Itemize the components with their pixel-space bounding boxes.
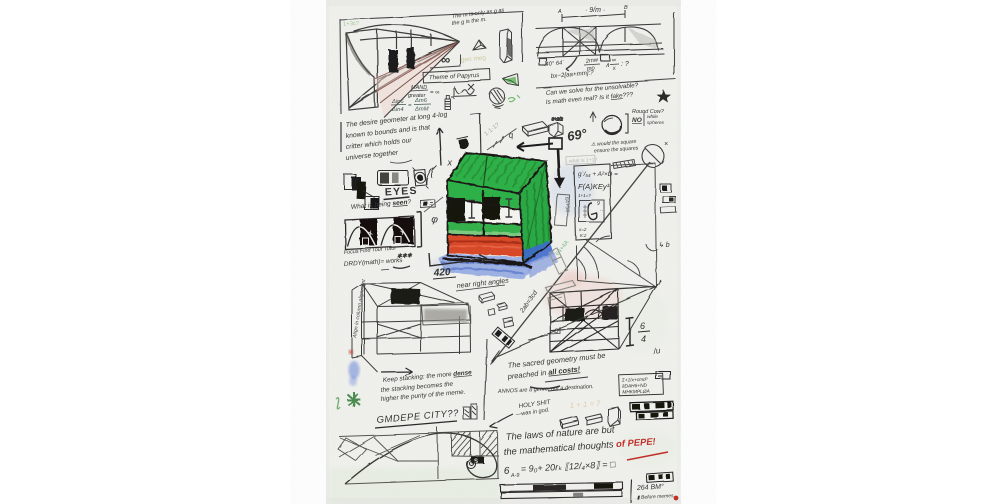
svg-text:6: 6: [504, 466, 511, 477]
svg-text:K:2: K:2: [580, 233, 587, 238]
svg-text:↳ b: ↳ b: [658, 241, 670, 249]
svg-text:ΔmM: ΔmM: [414, 107, 429, 113]
svg-text:Δin6: Δin6: [391, 99, 404, 105]
svg-text:B: B: [624, 5, 628, 11]
svg-text:9: 9: [597, 201, 600, 207]
svg-text:··: ··: [600, 208, 604, 214]
svg-text:Δm6: Δm6: [414, 98, 428, 104]
svg-text:×: ×: [664, 141, 668, 148]
svg-text:∧: ∧: [605, 62, 610, 69]
svg-text:· 9/m ·: · 9/m ·: [585, 7, 605, 14]
svg-text:A: A: [557, 9, 562, 15]
svg-text:Δin4: Δin4: [391, 107, 404, 113]
svg-text:264 BM°: 264 BM°: [636, 483, 665, 492]
svg-text:✱✱✱: ✱✱✱: [397, 252, 413, 260]
svg-text:6: 6: [640, 321, 645, 331]
svg-text:∂DAH6+ND: ∂DAH6+ND: [622, 383, 648, 390]
svg-text:while: while: [647, 114, 658, 120]
svg-text:NO: NO: [632, 117, 642, 124]
svg-text:gʿ/₅₄ + A²×D =: gʿ/₅₄ + A²×D =: [578, 170, 618, 178]
svg-text:64+50: 64+50: [563, 197, 570, 213]
svg-text:=: =: [408, 103, 412, 109]
svg-text:x: x: [447, 158, 453, 168]
svg-text:F(A)KEy¹: F(A)KEy¹: [578, 182, 610, 191]
svg-text:: ?: : ?: [621, 61, 629, 68]
svg-text:4: 4: [641, 334, 646, 344]
svg-text:= ∞: = ∞: [430, 90, 439, 96]
svg-text:∞: ∞: [658, 374, 662, 380]
svg-text:A-9: A-9: [510, 473, 520, 479]
svg-text:spheres: spheres: [647, 120, 665, 126]
svg-text:1+1=?: 1+1=?: [578, 193, 591, 198]
svg-text:MHKMPLØA: MHKMPLØA: [622, 389, 650, 396]
svg-text:Σ+1/x+cmd³: Σ+1/x+cmd³: [621, 377, 648, 384]
svg-text:EYES: EYES: [385, 185, 418, 199]
svg-text:3+2/2: 3+2/2: [552, 117, 564, 122]
svg-text:1+3c?: 1+3c?: [343, 21, 361, 28]
svg-text:x=2: x=2: [578, 227, 587, 232]
svg-text:∞: ∞: [441, 52, 450, 67]
svg-text:∞: ∞: [611, 57, 616, 64]
